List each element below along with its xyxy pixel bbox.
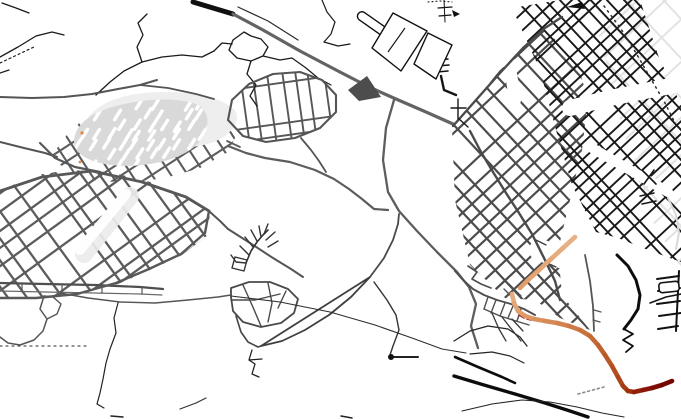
grid-street-line: [252, 177, 504, 419]
road-polyline: [210, 212, 303, 277]
road-polyline: [97, 303, 118, 408]
road-polyline: [454, 376, 588, 417]
road-polyline: [441, 76, 456, 95]
road-polyline: [240, 246, 249, 255]
street-map-canvas: [0, 0, 681, 419]
road-polyline: [341, 416, 352, 418]
road-polyline: [228, 146, 388, 210]
grid-street-line: [195, 71, 362, 94]
blob-street-slash: [76, 98, 82, 107]
road-polyline: [232, 257, 247, 271]
highlight-route-segment: [563, 237, 575, 248]
grid-street-line: [260, 25, 283, 192]
road-polyline: [439, 15, 451, 16]
road-polyline: [137, 14, 147, 62]
road-polyline: [508, 306, 513, 318]
grid-street-line: [204, 137, 371, 160]
road-polyline: [236, 316, 261, 347]
city-street-grid-3: [252, 0, 681, 419]
grid-street-line: [330, 15, 353, 182]
grid-street-line: [104, 168, 309, 301]
road-polyline: [243, 285, 261, 326]
grid-street-line: [63, 252, 294, 419]
grid-street-line: [2, 167, 233, 335]
route-node-marker: [80, 131, 83, 134]
grid-street-line: [110, 177, 315, 310]
road-layer: [0, 0, 681, 418]
road-polyline: [374, 282, 399, 355]
road-polyline: [470, 352, 524, 363]
street-grid-layer: [0, 0, 681, 419]
blob-street-slash: [203, 162, 209, 171]
road-polyline: [322, 0, 335, 42]
grid-street-line: [357, 80, 609, 351]
highlight-route-segment: [662, 381, 672, 385]
road-polyline: [259, 226, 261, 237]
grid-street-line: [491, 166, 681, 418]
road-polyline: [0, 283, 163, 289]
road-polyline: [324, 42, 350, 46]
street-map: [0, 0, 681, 419]
road-polyline: [0, 296, 47, 345]
grid-street-line: [170, 0, 303, 183]
road-polyline: [268, 241, 278, 247]
road-polyline: [96, 51, 214, 95]
road-polyline: [261, 277, 370, 346]
grid-street-line: [18, 189, 249, 357]
road-polyline: [238, 7, 298, 40]
road-polyline: [500, 303, 505, 316]
road-polyline: [249, 350, 259, 377]
grid-street-line: [234, 29, 257, 196]
road-polyline: [193, 2, 233, 14]
route-node-marker: [79, 161, 82, 164]
road-polyline: [657, 276, 679, 279]
road-polyline: [2, 3, 29, 13]
grid-street-line: [419, 89, 681, 341]
blob-street-slash: [88, 100, 94, 109]
road-polyline: [491, 300, 496, 313]
road-polyline: [251, 230, 257, 241]
road-polyline: [0, 142, 57, 157]
road-polyline: [370, 214, 399, 277]
road-polyline: [245, 237, 253, 247]
road-polyline: [0, 47, 34, 63]
road-polyline: [594, 310, 601, 312]
road-polyline: [266, 232, 275, 240]
outlined-capsule-road: [659, 281, 680, 293]
road-polyline: [444, 0, 445, 22]
road-polyline: [578, 387, 604, 394]
grid-street-line: [488, 32, 681, 272]
road-polyline: [268, 283, 272, 322]
road-end-dot: [388, 354, 394, 360]
road-polyline: [658, 326, 678, 329]
outlined-road-shape: [452, 10, 460, 17]
grid-street-line: [336, 99, 588, 370]
road-polyline: [623, 329, 633, 352]
grid-street-line: [283, 149, 535, 419]
road-polyline: [180, 398, 206, 409]
road-polyline: [484, 297, 488, 309]
road-polyline: [229, 32, 268, 61]
road-polyline: [231, 282, 298, 327]
road-polyline: [428, 1, 452, 2]
blob-street-slash: [90, 161, 96, 170]
road-polyline: [454, 326, 527, 346]
road-polyline: [0, 70, 9, 73]
grid-street-line: [211, 184, 378, 207]
grid-street-line: [271, 160, 523, 419]
road-polyline: [111, 416, 123, 417]
blob-street-slash: [81, 109, 87, 118]
grid-street-line: [57, 243, 288, 411]
grid-street-line: [209, 167, 376, 190]
road-polyline: [438, 7, 452, 8]
road-polyline: [44, 296, 61, 319]
road-polyline: [0, 32, 64, 57]
road-polyline: [249, 359, 262, 360]
